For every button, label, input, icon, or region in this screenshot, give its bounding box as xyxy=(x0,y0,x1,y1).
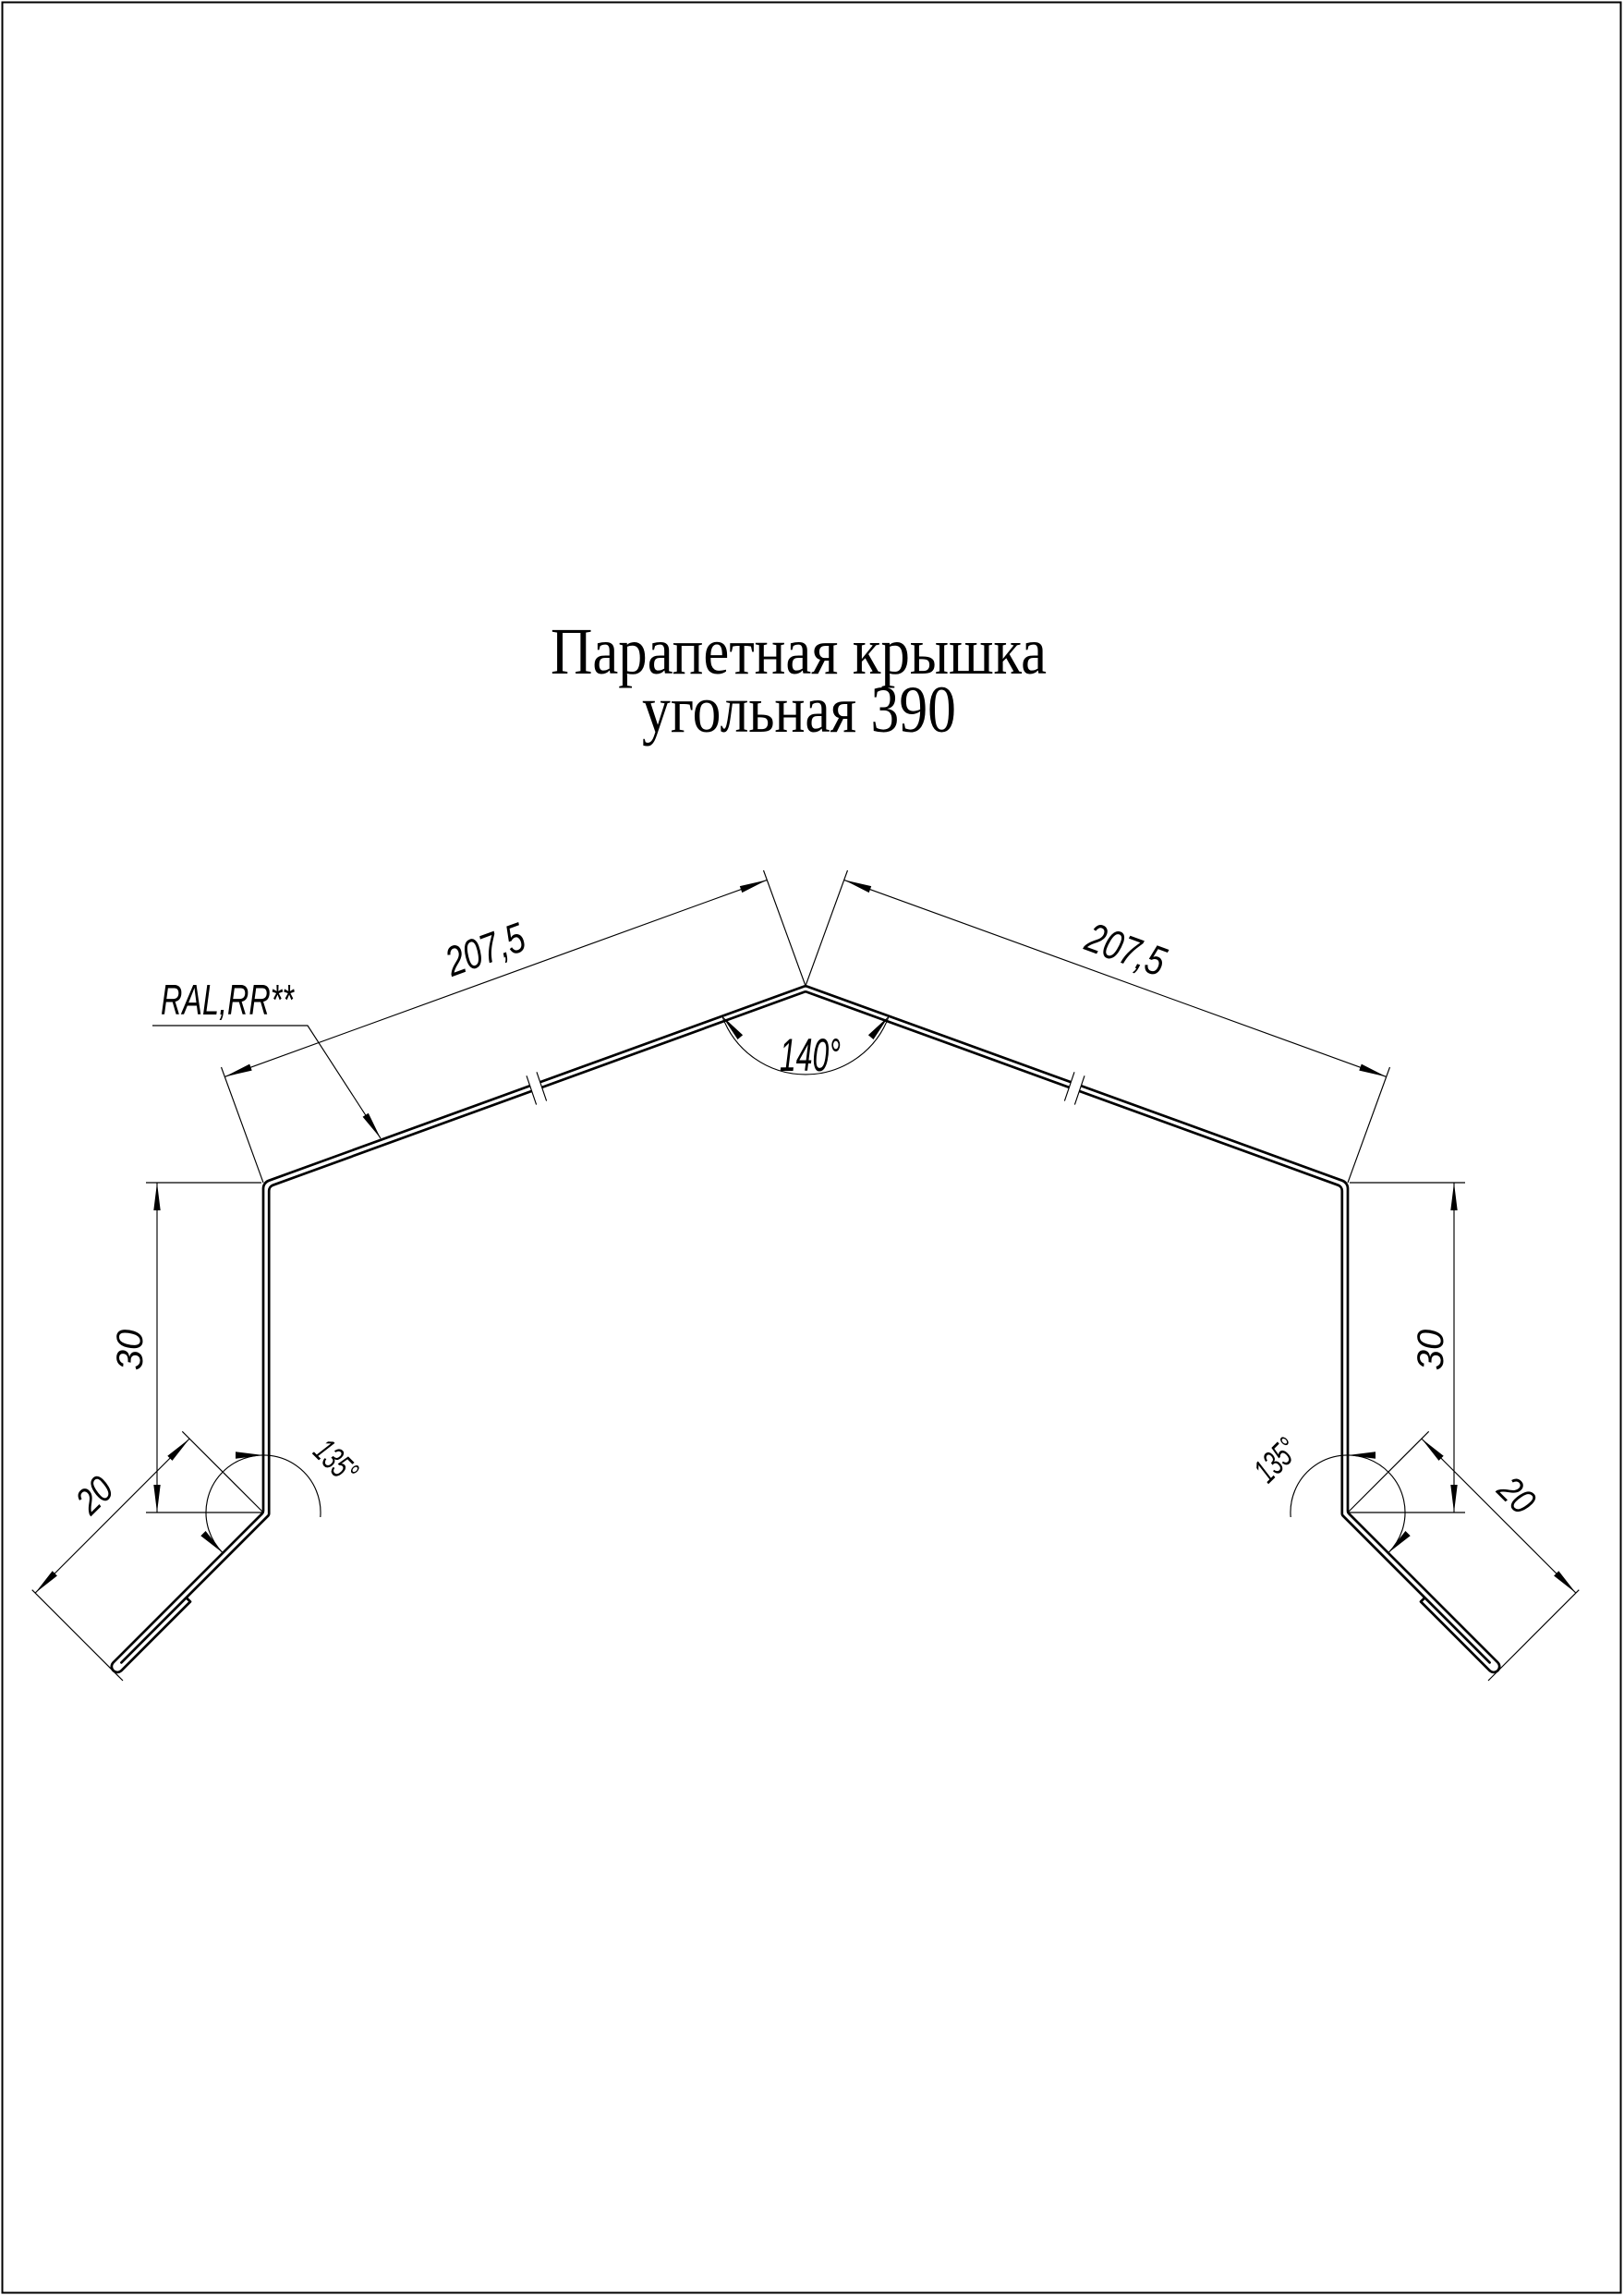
svg-text:30: 30 xyxy=(1411,1330,1451,1371)
svg-text:угольная 390: угольная 390 xyxy=(642,674,956,747)
svg-text:30: 30 xyxy=(110,1330,151,1371)
svg-text:140°: 140° xyxy=(780,1029,841,1081)
svg-text:RAL,RR**: RAL,RR** xyxy=(161,978,295,1025)
